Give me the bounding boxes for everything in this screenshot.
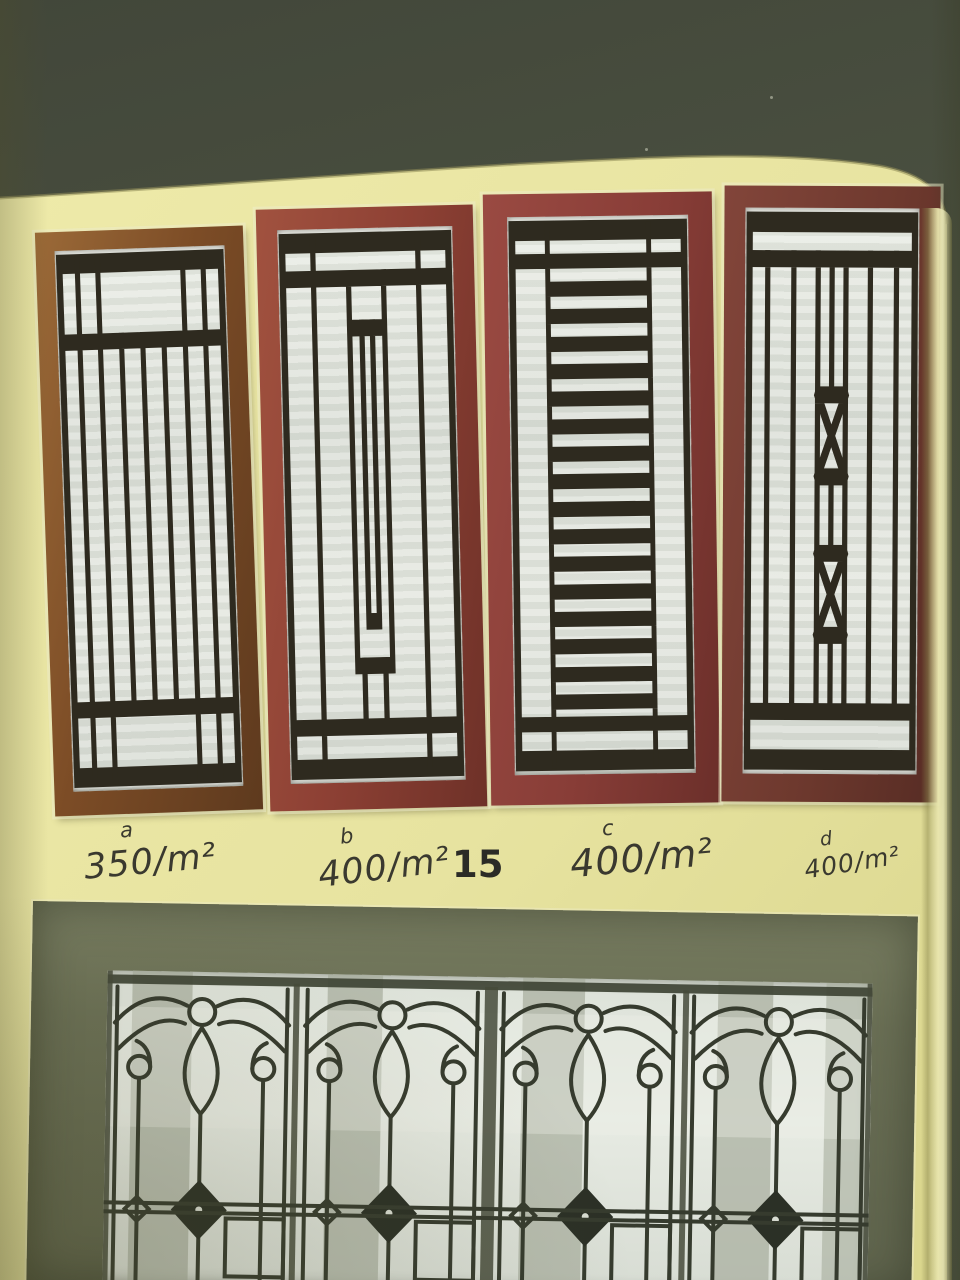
catalog-photo-b [256,204,488,811]
item-letter-d: d [819,827,835,850]
photo-of-catalog-page: a 350/m² b 400/m² 15 c 400/m² d 400/m² [0,0,960,1280]
window-glass-b [277,226,465,784]
grille-pattern-d [743,208,920,775]
page-number: 15 [452,843,504,886]
window-glass-c [507,215,696,775]
catalog-photo-c [483,191,721,805]
item-letter-c: c [601,816,615,841]
window-glass-d [743,208,920,775]
page-edge-curl [921,208,952,1280]
wrought-iron-grille [102,970,872,1280]
window-glass-a [55,245,244,792]
dust-speck [770,96,773,99]
item-letter-b: b [339,823,356,848]
catalog-photo-a [35,226,263,817]
grille-pattern-c [507,215,696,775]
item-letter-a: a [119,818,135,843]
wrought-iron-window [102,970,872,1280]
grille-pattern-a [55,245,244,792]
dust-speck [645,148,648,151]
grille-pattern-b [277,226,465,784]
catalog-photo-d [721,185,940,802]
catalog-photo-wrought-iron [26,901,917,1280]
